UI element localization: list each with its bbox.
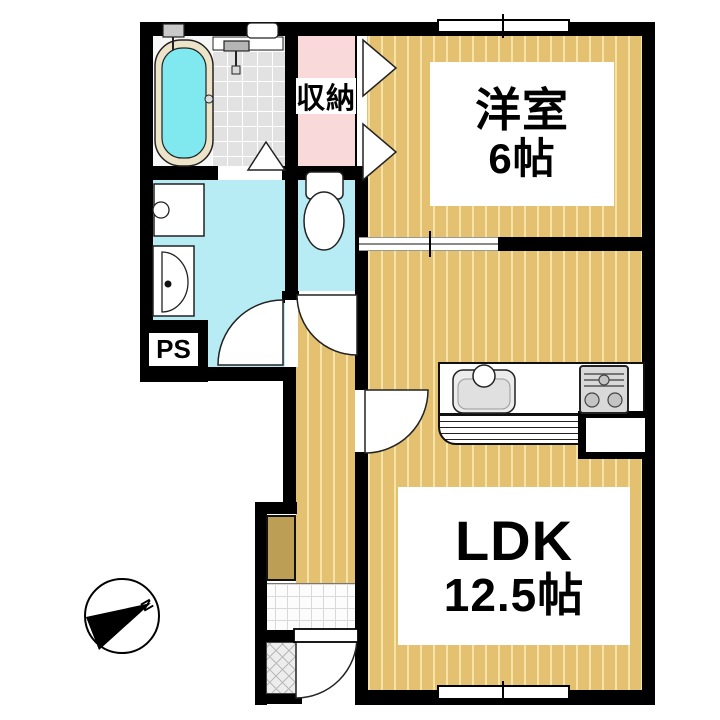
entrance-door-swing [296, 637, 357, 698]
washroom-door-swing [218, 300, 283, 365]
shower-mixer-icon [224, 41, 249, 51]
western-room-size: 6帖 [488, 136, 555, 181]
western-room-name: 洋室 [475, 86, 569, 136]
closet-folding-door [363, 124, 396, 180]
tub-faucet-icon [163, 24, 184, 37]
basin-drain [165, 281, 172, 288]
ldk-label: LDK 12.5帖 [398, 487, 630, 645]
shower-shelf [247, 23, 278, 38]
storage-label: 収納 [296, 78, 356, 114]
washer-drain [153, 202, 169, 218]
pipe-space-label: PS [147, 331, 200, 368]
bathtub-drain-knob [205, 95, 213, 103]
ldk-door-swing [365, 390, 428, 453]
western-room-label: 洋室 6帖 [430, 62, 614, 206]
stove-burner [585, 393, 599, 407]
shower-head-icon [232, 66, 240, 74]
toilet-door-swing [297, 295, 357, 355]
ldk-name: LDK [455, 511, 573, 571]
bathtub [162, 48, 206, 158]
stove-burner [608, 393, 622, 407]
kitchen-faucet [473, 365, 495, 387]
stove [580, 366, 628, 413]
ldk-size: 12.5帖 [444, 571, 585, 621]
entrance-door-panel [294, 629, 358, 642]
stove-burner [599, 375, 609, 385]
bath-folding-door [248, 142, 285, 170]
closet-folding-door [363, 40, 396, 96]
toilet-bowl [304, 192, 344, 250]
floor-plan: 洋室 6帖 LDK 12.5帖 収納 PS N [0, 0, 720, 720]
